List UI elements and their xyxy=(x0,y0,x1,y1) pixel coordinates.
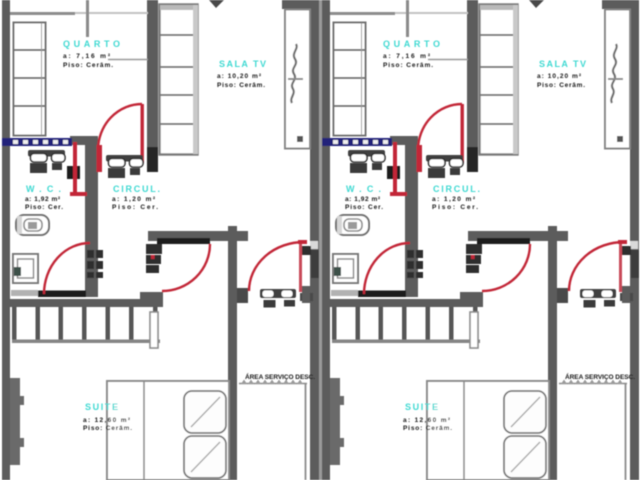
svg-text:Piso: Cerâm.: Piso: Cerâm. xyxy=(403,425,452,432)
svg-text:a: 7,16 m²: a: 7,16 m² xyxy=(383,53,431,60)
svg-text:Piso: Cerâm.: Piso: Cerâm. xyxy=(83,425,132,432)
svg-text:Piso: Cer.: Piso: Cer. xyxy=(432,204,478,211)
svg-text:a: 1,92 m²: a: 1,92 m² xyxy=(345,196,381,203)
svg-text:a: 12,60 m²: a: 12,60 m² xyxy=(403,417,451,424)
svg-text:QUARTO: QUARTO xyxy=(383,39,440,49)
svg-text:a: 12,60 m²: a: 12,60 m² xyxy=(83,417,131,424)
svg-text:a: 10,20 m²: a: 10,20 m² xyxy=(537,73,582,80)
svg-text:W.C.: W.C. xyxy=(346,184,381,194)
svg-text:SALA TV: SALA TV xyxy=(219,59,266,69)
svg-text:Piso: Cerâm.: Piso: Cerâm. xyxy=(537,82,585,89)
svg-text:a: 7,16 m²: a: 7,16 m² xyxy=(63,53,111,60)
svg-text:SALA TV: SALA TV xyxy=(539,59,586,69)
svg-text:W.C.: W.C. xyxy=(26,184,61,194)
svg-text:a: 1,20 m²: a: 1,20 m² xyxy=(112,196,156,203)
svg-text:Piso: Cerâm.: Piso: Cerâm. xyxy=(63,62,113,69)
svg-text:SUITE: SUITE xyxy=(85,402,118,412)
svg-text:Piso: Cer.: Piso: Cer. xyxy=(112,204,158,211)
svg-text:QUARTO: QUARTO xyxy=(63,39,120,49)
svg-text:Piso: Cer.: Piso: Cer. xyxy=(345,204,383,211)
svg-text:a: 10,20 m²: a: 10,20 m² xyxy=(217,73,262,80)
svg-text:CIRCUL.: CIRCUL. xyxy=(113,184,160,194)
svg-text:a: 1,20 m²: a: 1,20 m² xyxy=(432,196,476,203)
svg-text:a: 1,92 m²: a: 1,92 m² xyxy=(25,196,61,203)
svg-text:SUITE: SUITE xyxy=(405,402,438,412)
svg-text:Piso: Cerâm.: Piso: Cerâm. xyxy=(217,82,265,89)
svg-text:Piso: Cer.: Piso: Cer. xyxy=(25,204,63,211)
svg-text:CIRCUL.: CIRCUL. xyxy=(433,184,480,194)
svg-text:ÁREA SERVIÇO DESC.: ÁREA SERVIÇO DESC. xyxy=(565,372,635,381)
svg-text:Piso: Cerâm.: Piso: Cerâm. xyxy=(383,62,433,69)
svg-text:ÁREA SERVIÇO DESC.: ÁREA SERVIÇO DESC. xyxy=(245,372,315,381)
